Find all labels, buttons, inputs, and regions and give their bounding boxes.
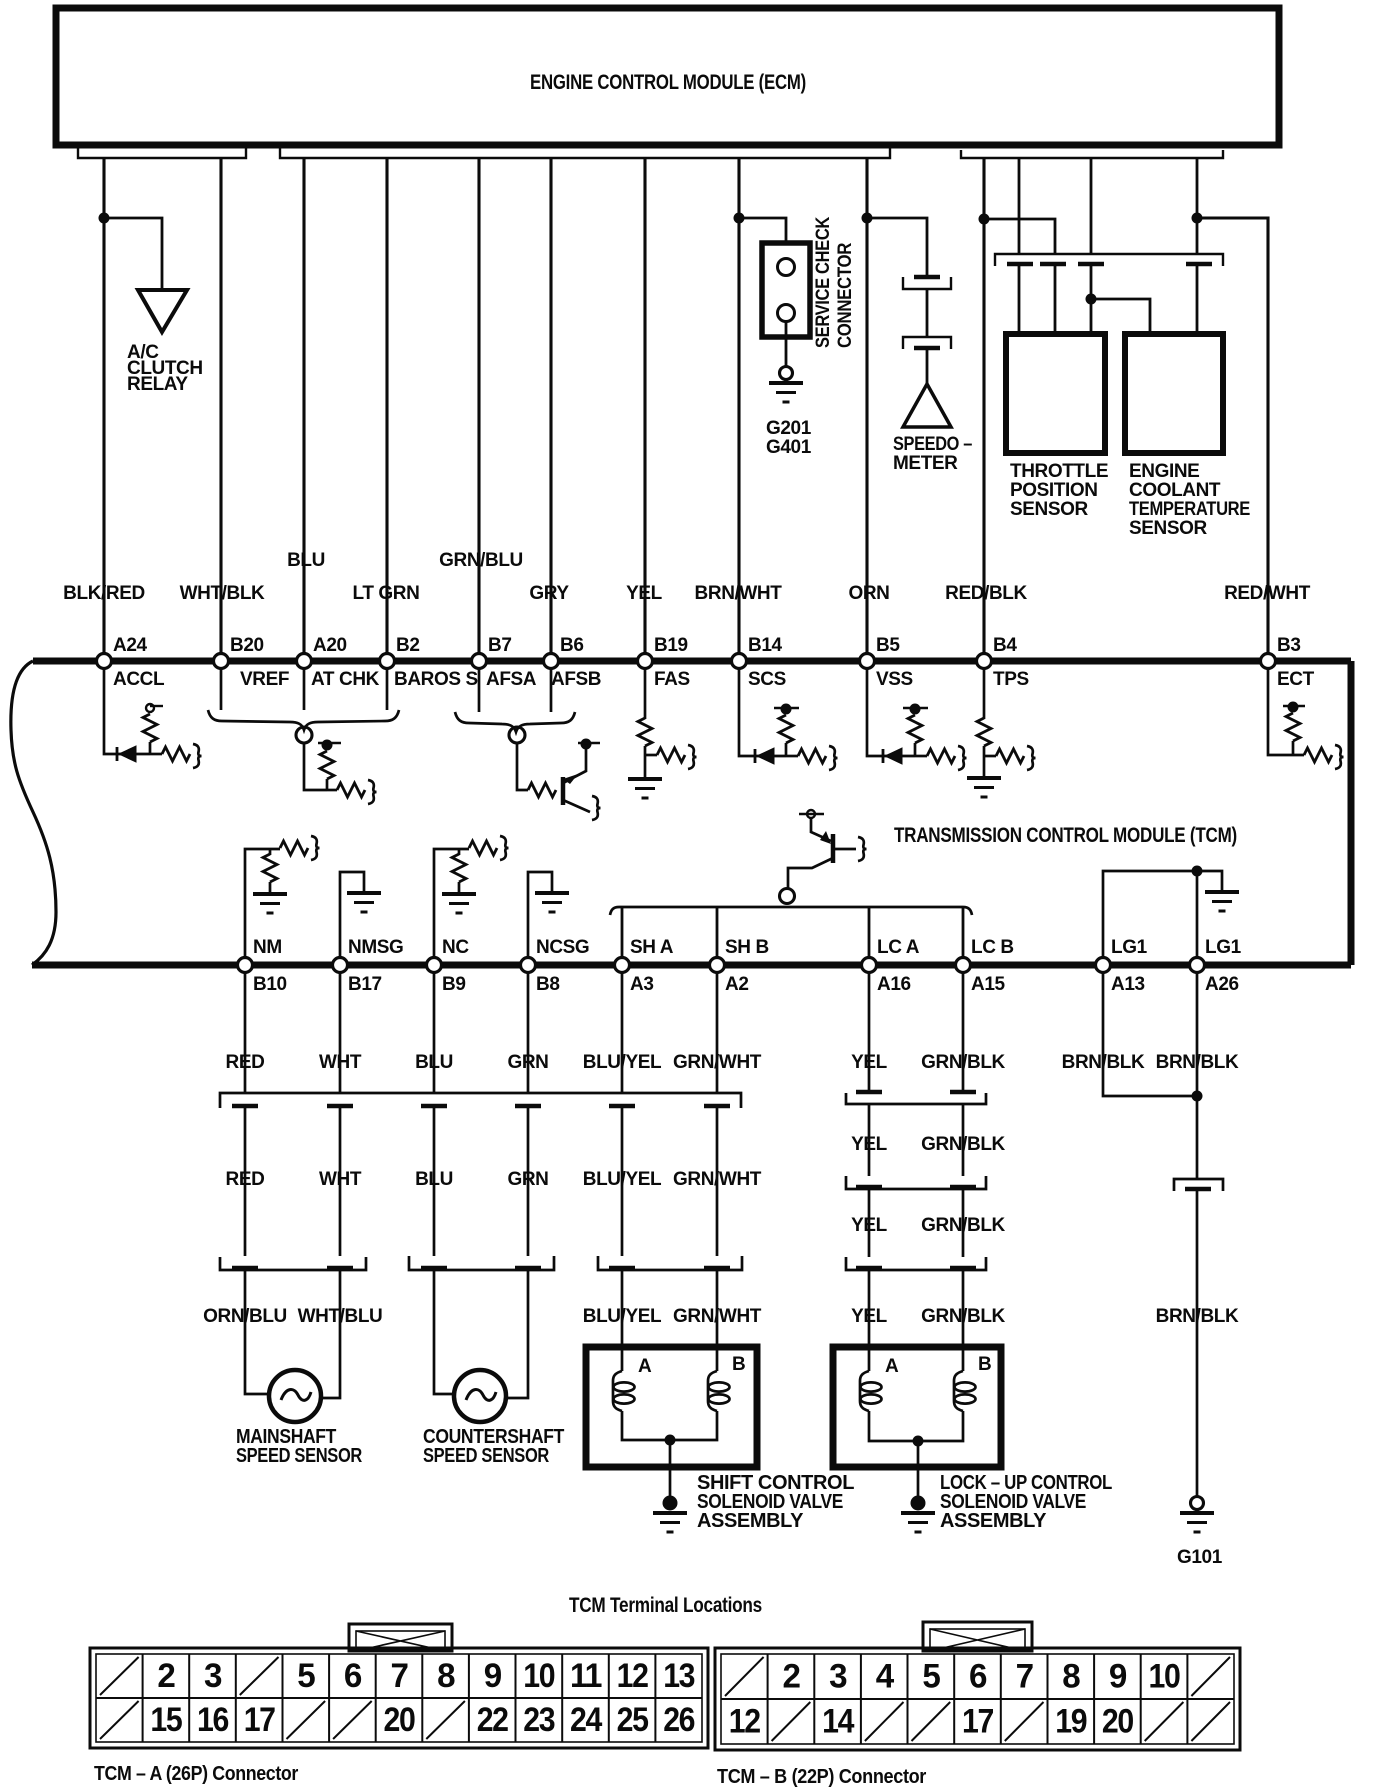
svg-text:ORN/BLU: ORN/BLU [203, 1306, 287, 1327]
svg-text:B6: B6 [560, 635, 584, 656]
svg-text:GRN: GRN [507, 1169, 548, 1190]
svg-text:B2: B2 [396, 635, 420, 656]
svg-text:23: 23 [523, 1701, 555, 1739]
svg-text:SENSOR: SENSOR [1129, 518, 1208, 539]
svg-text:YEL: YEL [851, 1134, 888, 1155]
svg-text:YEL: YEL [851, 1215, 888, 1236]
svg-text:ECT: ECT [1277, 669, 1315, 690]
svg-text:26: 26 [663, 1701, 695, 1739]
svg-text:BAROS S: BAROS S [394, 669, 478, 690]
svg-text:GRN/BLU: GRN/BLU [439, 550, 523, 571]
svg-text:BLU: BLU [287, 550, 325, 571]
svg-text:WHT: WHT [319, 1052, 362, 1073]
svg-text:9: 9 [484, 1657, 502, 1695]
svg-text:11: 11 [570, 1657, 602, 1695]
svg-text:BRN/BLK: BRN/BLK [1156, 1306, 1239, 1327]
svg-text:FAS: FAS [654, 669, 690, 690]
svg-text:15: 15 [150, 1701, 182, 1739]
svg-text:WHT/BLK: WHT/BLK [180, 583, 265, 604]
svg-text:GRN/WHT: GRN/WHT [673, 1169, 762, 1190]
svg-text:A24: A24 [113, 635, 147, 656]
svg-text:2: 2 [783, 1658, 801, 1696]
svg-text:NM: NM [253, 937, 282, 958]
svg-text:YEL: YEL [626, 583, 663, 604]
svg-text:B3: B3 [1277, 635, 1301, 656]
svg-text:BLU/YEL: BLU/YEL [583, 1052, 662, 1073]
svg-text:A26: A26 [1205, 974, 1239, 995]
svg-text:B8: B8 [536, 974, 560, 995]
svg-text:B14: B14 [748, 635, 782, 656]
svg-text:LG1: LG1 [1205, 937, 1242, 958]
svg-text:25: 25 [617, 1701, 649, 1739]
svg-text:B10: B10 [253, 974, 287, 995]
svg-text:6: 6 [969, 1658, 987, 1696]
svg-text:5: 5 [922, 1658, 940, 1696]
svg-text:BLK/RED: BLK/RED [63, 583, 145, 604]
svg-text:AFSB: AFSB [551, 669, 601, 690]
svg-text:B19: B19 [654, 635, 688, 656]
svg-text:SPEEDO –: SPEEDO – [893, 434, 972, 455]
svg-text:7: 7 [391, 1657, 409, 1695]
svg-text:YEL: YEL [851, 1052, 888, 1073]
svg-text:A13: A13 [1111, 974, 1145, 995]
svg-text:GRN/BLK: GRN/BLK [921, 1215, 1005, 1236]
svg-text:SPEED SENSOR: SPEED SENSOR [236, 1445, 363, 1467]
svg-text:17: 17 [244, 1701, 276, 1739]
svg-text:A16: A16 [877, 974, 911, 995]
svg-text:CONNECTOR: CONNECTOR [835, 242, 856, 348]
svg-text:G101: G101 [1177, 1547, 1223, 1568]
svg-text:GRN/BLK: GRN/BLK [921, 1134, 1005, 1155]
svg-text:SH A: SH A [630, 937, 674, 958]
svg-text:B: B [732, 1354, 745, 1375]
svg-text:9: 9 [1109, 1658, 1127, 1696]
svg-text:BRN/BLK: BRN/BLK [1156, 1052, 1239, 1073]
svg-text:13: 13 [663, 1657, 695, 1695]
svg-text:TEMPERATURE: TEMPERATURE [1129, 499, 1250, 520]
svg-text:7: 7 [1016, 1658, 1034, 1696]
svg-text:20: 20 [1102, 1703, 1134, 1741]
svg-text:RELAY: RELAY [127, 374, 188, 395]
svg-text:BRN/WHT: BRN/WHT [695, 583, 783, 604]
svg-text:12: 12 [729, 1703, 761, 1741]
svg-text:A: A [638, 1356, 652, 1377]
svg-text:AT CHK: AT CHK [311, 669, 380, 690]
svg-text:G401: G401 [766, 437, 812, 458]
svg-text:17: 17 [962, 1703, 994, 1741]
svg-text:19: 19 [1055, 1703, 1087, 1741]
svg-text:BLU/YEL: BLU/YEL [583, 1306, 662, 1327]
svg-text:AFSA: AFSA [486, 669, 537, 690]
svg-text:GRN/WHT: GRN/WHT [673, 1052, 762, 1073]
svg-text:NC: NC [442, 937, 469, 958]
svg-text:BLU: BLU [415, 1169, 453, 1190]
svg-text:GRN/BLK: GRN/BLK [921, 1306, 1005, 1327]
svg-text:SERVICE CHECK: SERVICE CHECK [813, 216, 834, 348]
svg-text:LC B: LC B [971, 937, 1014, 958]
svg-text:NMSG: NMSG [348, 937, 403, 958]
svg-text:TRANSMISSION CONTROL MODULE (T: TRANSMISSION CONTROL MODULE (TCM) [894, 824, 1237, 847]
svg-text:A15: A15 [971, 974, 1005, 995]
svg-text:GRN/WHT: GRN/WHT [673, 1306, 762, 1327]
svg-text:A: A [885, 1356, 899, 1377]
svg-text:LT GRN: LT GRN [353, 583, 420, 604]
svg-text:10: 10 [523, 1657, 555, 1695]
svg-text:LC A: LC A [877, 937, 920, 958]
svg-text:THROTTLE: THROTTLE [1010, 461, 1108, 482]
svg-text:COOLANT: COOLANT [1129, 480, 1221, 501]
svg-text:B4: B4 [993, 635, 1017, 656]
svg-text:VREF: VREF [240, 669, 289, 690]
svg-text:3: 3 [829, 1658, 847, 1696]
svg-text:SPEED SENSOR: SPEED SENSOR [423, 1445, 550, 1467]
svg-text:GRN/BLK: GRN/BLK [921, 1052, 1005, 1073]
svg-text:4: 4 [876, 1658, 895, 1696]
svg-text:SCS: SCS [748, 669, 786, 690]
svg-text:BLU: BLU [415, 1052, 453, 1073]
svg-text:VSS: VSS [876, 669, 913, 690]
svg-text:B20: B20 [230, 635, 264, 656]
svg-text:TCM Terminal Locations: TCM Terminal Locations [569, 1594, 762, 1617]
svg-text:3: 3 [204, 1657, 222, 1695]
svg-text:POSITION: POSITION [1010, 480, 1098, 501]
svg-text:TCM – A (26P) Connector: TCM – A (26P) Connector [94, 1763, 299, 1785]
svg-text:YEL: YEL [851, 1306, 888, 1327]
svg-text:A20: A20 [313, 635, 347, 656]
svg-text:BRN/BLK: BRN/BLK [1062, 1052, 1145, 1073]
svg-text:BLU/YEL: BLU/YEL [583, 1169, 662, 1190]
svg-text:TCM – B (22P) Connector: TCM – B (22P) Connector [717, 1766, 927, 1788]
svg-text:G201: G201 [766, 418, 812, 439]
svg-text:8: 8 [1062, 1658, 1080, 1696]
svg-text:22: 22 [477, 1701, 509, 1739]
svg-text:B9: B9 [442, 974, 466, 995]
svg-text:20: 20 [384, 1701, 416, 1739]
svg-text:WHT: WHT [319, 1169, 362, 1190]
svg-text:B7: B7 [488, 635, 512, 656]
svg-text:A2: A2 [725, 974, 749, 995]
svg-text:6: 6 [344, 1657, 362, 1695]
svg-text:ASSEMBLY: ASSEMBLY [697, 1510, 804, 1532]
svg-text:ORN: ORN [848, 583, 889, 604]
svg-text:RED: RED [226, 1052, 265, 1073]
svg-text:2: 2 [157, 1657, 175, 1695]
svg-text:5: 5 [297, 1657, 315, 1695]
svg-text:12: 12 [617, 1657, 649, 1695]
svg-text:RED: RED [226, 1169, 265, 1190]
svg-text:16: 16 [197, 1701, 229, 1739]
svg-text:GRY: GRY [529, 583, 569, 604]
svg-text:10: 10 [1149, 1658, 1181, 1696]
svg-text:RED/WHT: RED/WHT [1224, 583, 1311, 604]
svg-text:SH B: SH B [725, 937, 769, 958]
svg-text:SENSOR: SENSOR [1010, 499, 1089, 520]
svg-text:LG1: LG1 [1111, 937, 1148, 958]
svg-text:A3: A3 [630, 974, 654, 995]
svg-text:14: 14 [822, 1703, 854, 1741]
svg-text:NCSG: NCSG [536, 937, 589, 958]
svg-text:B: B [978, 1354, 991, 1375]
svg-text:ENGINE CONTROL MODULE (ECM): ENGINE CONTROL MODULE (ECM) [530, 71, 806, 94]
svg-text:8: 8 [437, 1657, 455, 1695]
svg-text:WHT/BLU: WHT/BLU [298, 1306, 383, 1327]
svg-text:ENGINE: ENGINE [1129, 461, 1199, 482]
svg-text:24: 24 [570, 1701, 602, 1739]
svg-text:ASSEMBLY: ASSEMBLY [940, 1510, 1047, 1532]
svg-text:B5: B5 [876, 635, 900, 656]
svg-text:TPS: TPS [993, 669, 1029, 690]
svg-text:METER: METER [893, 453, 958, 474]
svg-text:ACCL: ACCL [113, 669, 165, 690]
svg-text:B17: B17 [348, 974, 382, 995]
svg-text:RED/BLK: RED/BLK [945, 583, 1027, 604]
svg-text:GRN: GRN [507, 1052, 548, 1073]
